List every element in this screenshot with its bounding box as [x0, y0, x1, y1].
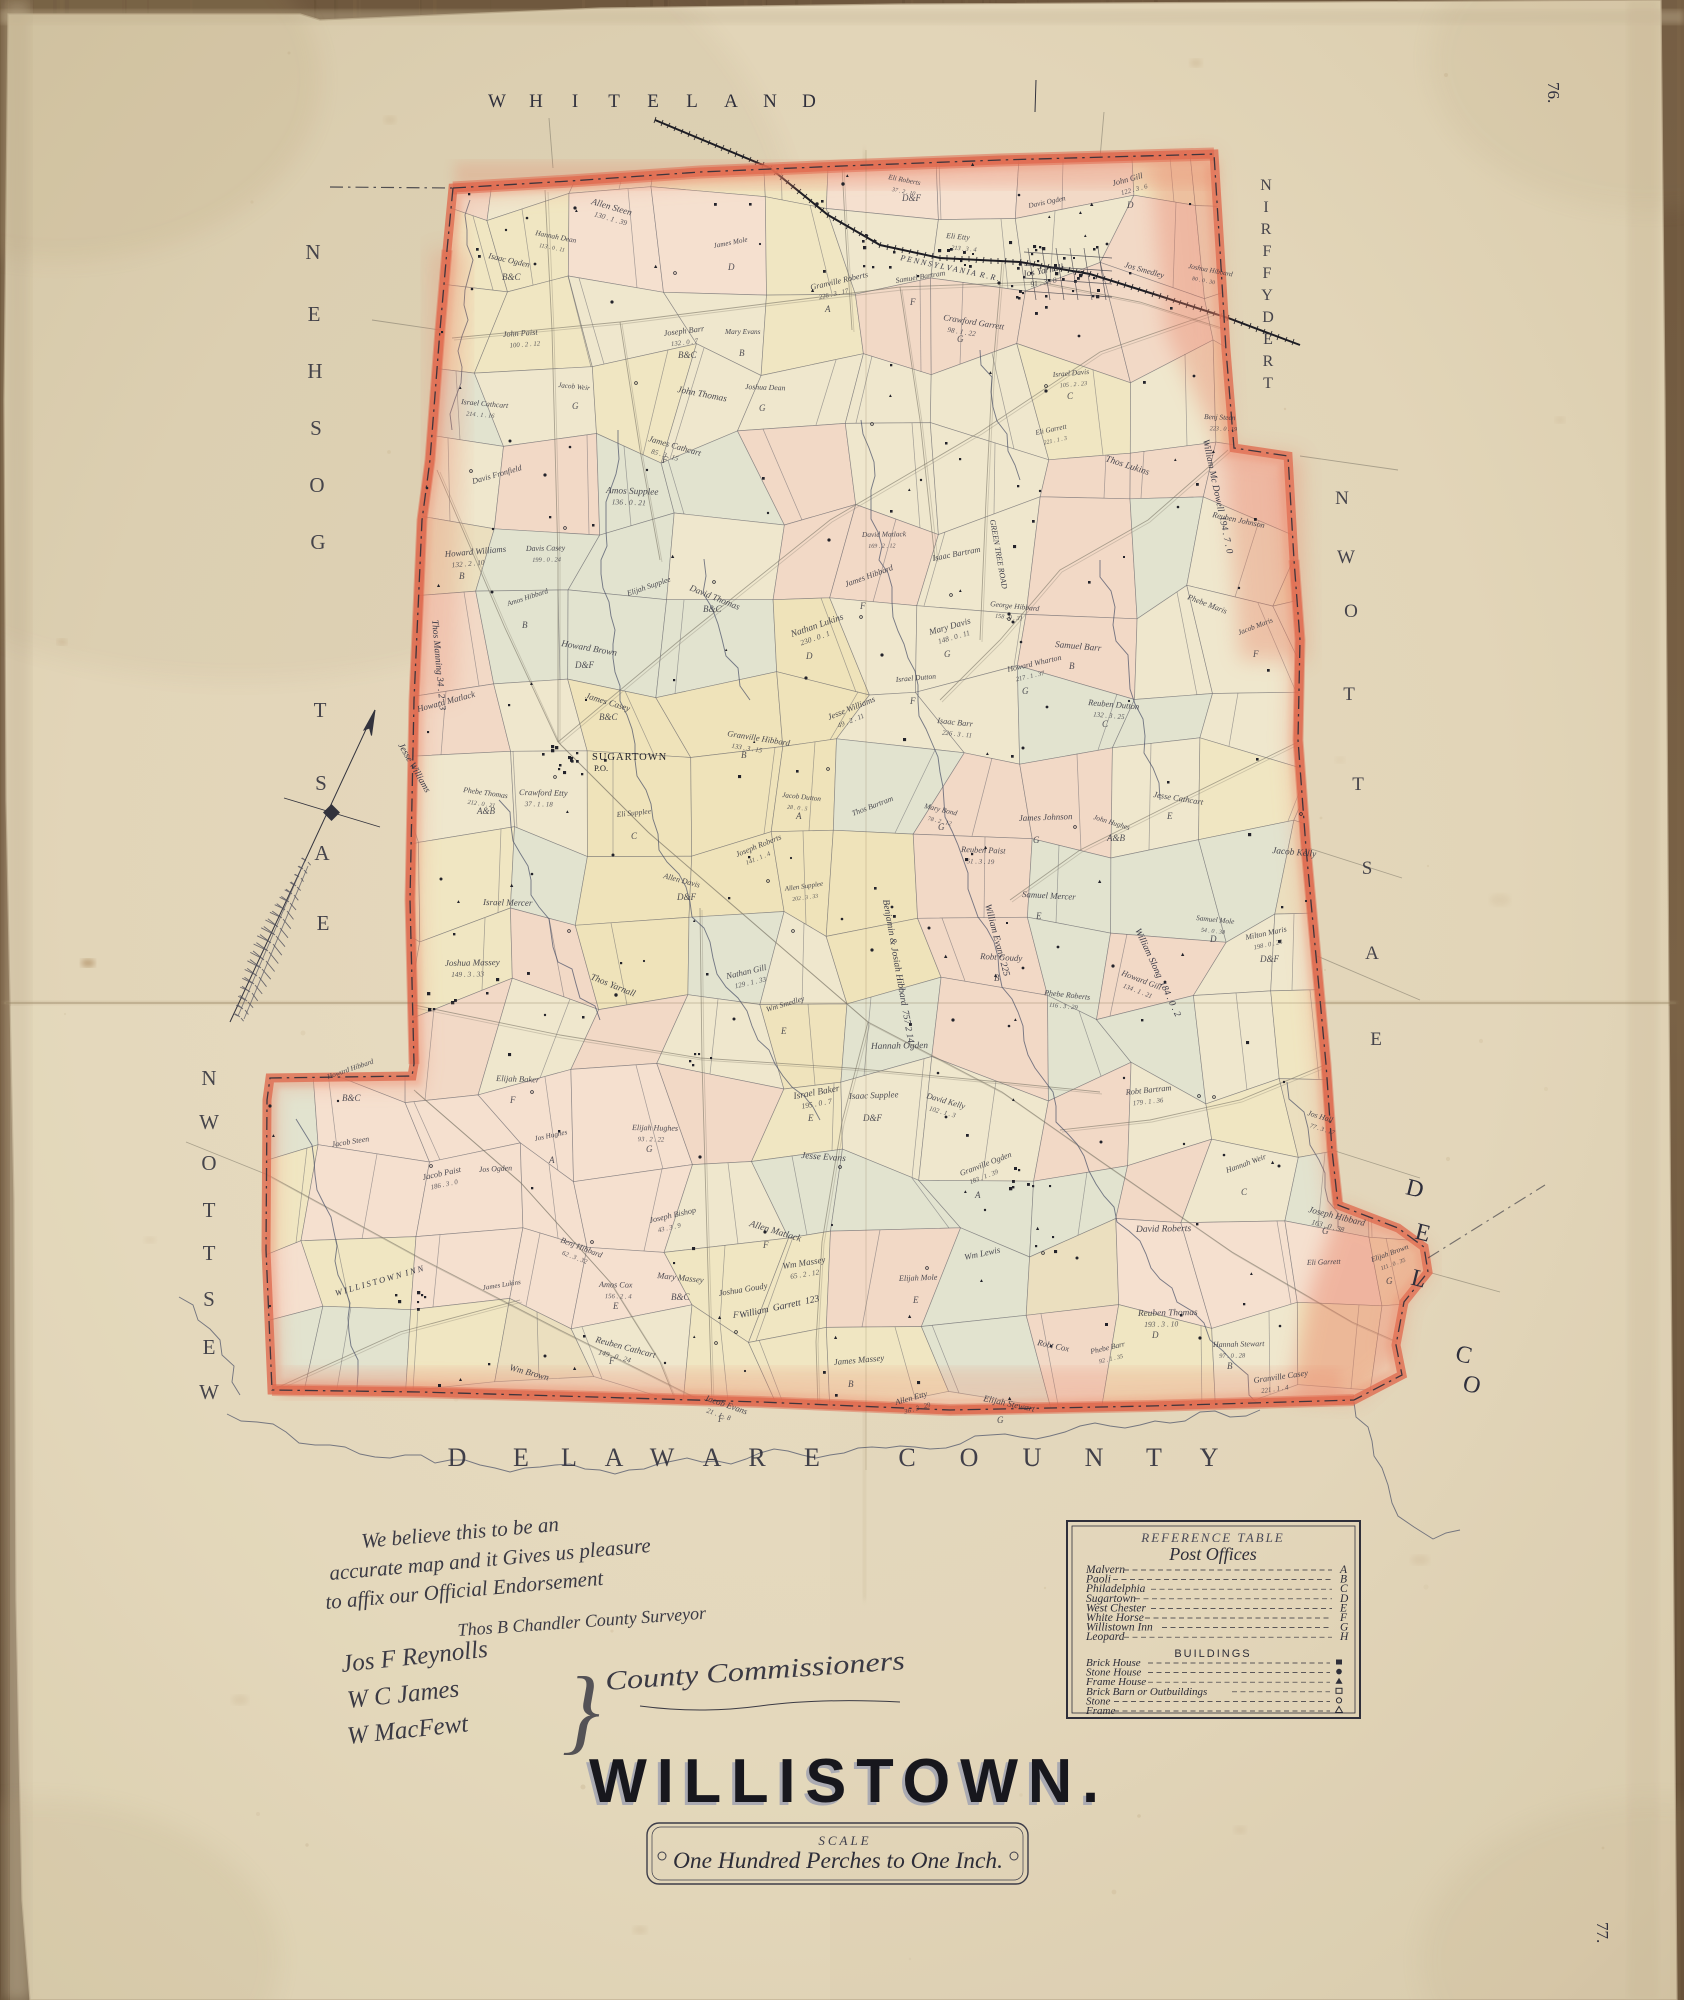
svg-text:W: W: [650, 1443, 675, 1472]
svg-text:H: H: [307, 359, 322, 383]
svg-text:E: E: [1035, 911, 1042, 921]
svg-text:G: G: [1033, 835, 1040, 845]
svg-text:D: D: [1209, 934, 1217, 944]
svg-text:D: D: [1151, 1330, 1159, 1340]
svg-text:C: C: [898, 1443, 915, 1472]
svg-text:E: E: [807, 1113, 814, 1123]
svg-text:WILLISTOWN.: WILLISTOWN.: [589, 1747, 1109, 1816]
svg-text:U: U: [1023, 1443, 1042, 1472]
svg-text:T: T: [1352, 774, 1364, 795]
svg-text:O: O: [309, 473, 324, 497]
svg-text:76.: 76.: [1544, 82, 1563, 103]
svg-text:H: H: [529, 91, 543, 112]
svg-text:Benj Steen: Benj Steen: [1204, 412, 1236, 422]
svg-text:W: W: [199, 1110, 219, 1134]
svg-text:E: E: [513, 1443, 529, 1472]
svg-text:W: W: [488, 91, 506, 112]
svg-text:136 . 0 . 21: 136 . 0 . 21: [612, 497, 646, 507]
svg-text:S: S: [1362, 858, 1373, 879]
svg-text:Reuben Paist: Reuben Paist: [960, 845, 1006, 856]
svg-text:D&F: D&F: [574, 660, 595, 670]
svg-text:BUILDINGS: BUILDINGS: [1174, 1648, 1251, 1660]
svg-text:P.O.: P.O.: [594, 763, 608, 773]
svg-text:I: I: [572, 91, 578, 112]
svg-text:D: D: [727, 262, 735, 272]
svg-text:D&F: D&F: [676, 892, 697, 902]
svg-text:W: W: [199, 1380, 219, 1404]
svg-text:N: N: [1335, 488, 1349, 509]
svg-text:F: F: [909, 297, 916, 307]
svg-text:B&C: B&C: [342, 1093, 361, 1103]
svg-text:A&B: A&B: [1106, 833, 1125, 843]
svg-text:T: T: [608, 91, 620, 112]
svg-text:E: E: [317, 911, 330, 935]
svg-text:Elijah Mole: Elijah Mole: [898, 1273, 938, 1283]
svg-text:N: N: [305, 240, 320, 264]
svg-text:Amos Supplee: Amos Supplee: [605, 486, 659, 498]
svg-text:David Roberts: David Roberts: [1135, 1224, 1192, 1235]
svg-text:Y: Y: [1200, 1443, 1219, 1472]
svg-text:Elijah Hughes: Elijah Hughes: [631, 1123, 678, 1133]
svg-text:G: G: [938, 822, 945, 832]
svg-text:N: N: [1260, 177, 1272, 194]
svg-text:D&F: D&F: [1259, 954, 1280, 964]
svg-text:G: G: [957, 334, 964, 344]
svg-text:G: G: [572, 401, 579, 411]
svg-text:93 . 2 . 22: 93 . 2 . 22: [638, 1136, 665, 1143]
svg-text:REFERENCE TABLE: REFERENCE TABLE: [1140, 1530, 1285, 1545]
svg-text:A: A: [795, 811, 802, 821]
svg-text:A: A: [974, 1190, 981, 1200]
svg-text:E: E: [612, 1301, 619, 1311]
svg-text:E: E: [780, 1026, 787, 1036]
svg-text:James Johnson: James Johnson: [1019, 811, 1073, 823]
svg-text:G: G: [310, 530, 325, 554]
svg-text:T: T: [1146, 1443, 1162, 1472]
svg-text:Eli Garrett: Eli Garrett: [1306, 1257, 1342, 1267]
svg-text:A: A: [1365, 943, 1379, 964]
svg-text:Elijah Baker: Elijah Baker: [495, 1073, 540, 1085]
svg-text:E: E: [912, 1295, 919, 1305]
svg-text:G: G: [997, 1415, 1004, 1425]
svg-text:C: C: [1102, 719, 1109, 729]
svg-text:A: A: [724, 91, 738, 112]
svg-text:C: C: [1241, 1187, 1248, 1197]
svg-text:Amos Cox: Amos Cox: [598, 1280, 633, 1290]
svg-text:T: T: [203, 1241, 216, 1265]
svg-text:T: T: [1263, 375, 1273, 392]
svg-text:SCALE: SCALE: [818, 1833, 871, 1848]
svg-text:Hannah Ogden: Hannah Ogden: [870, 1041, 929, 1052]
svg-text:A: A: [824, 304, 831, 314]
svg-text:F: F: [1252, 649, 1259, 659]
svg-text:O: O: [1344, 601, 1358, 622]
svg-text:Joshua Dean: Joshua Dean: [745, 382, 786, 392]
svg-text:E: E: [203, 1335, 216, 1359]
svg-text:B&C: B&C: [502, 272, 521, 282]
svg-text:G: G: [759, 403, 766, 413]
svg-text:O: O: [201, 1151, 216, 1175]
svg-text:T: T: [1343, 684, 1355, 705]
svg-text:Mary Evans: Mary Evans: [724, 327, 761, 336]
svg-text:I: I: [1263, 199, 1268, 216]
svg-text:E: E: [804, 1443, 820, 1472]
svg-text:51 . 3 . 19: 51 . 3 . 19: [967, 858, 995, 866]
svg-text:37 . 1 . 18: 37 . 1 . 18: [524, 800, 554, 809]
svg-text:S: S: [315, 771, 327, 795]
svg-text:G: G: [1386, 1276, 1393, 1286]
svg-text:223 . 0 . 19: 223 . 0 . 19: [1210, 426, 1238, 433]
svg-text:97 . 0 . 28: 97 . 0 . 28: [1219, 1352, 1246, 1359]
svg-text:F: F: [661, 455, 668, 465]
svg-text:B&C: B&C: [703, 604, 722, 614]
svg-text:E: E: [1263, 331, 1273, 348]
svg-text:156 . 2 . 4: 156 . 2 . 4: [605, 1293, 633, 1300]
svg-text:C: C: [631, 831, 638, 841]
svg-text:169 . 2 . 12: 169 . 2 . 12: [868, 543, 896, 549]
svg-text:N: N: [763, 91, 777, 112]
svg-text:W: W: [1337, 547, 1355, 568]
svg-text:T: T: [203, 1198, 216, 1222]
svg-text:L: L: [686, 91, 698, 112]
svg-text:David Matlack: David Matlack: [861, 529, 907, 539]
svg-text:A: A: [314, 841, 330, 865]
svg-text:E: E: [1166, 811, 1173, 821]
svg-text:B&C: B&C: [671, 1292, 690, 1302]
svg-text:SUGARTOWN: SUGARTOWN: [592, 752, 667, 763]
svg-text:Hannah Stewart: Hannah Stewart: [1212, 1339, 1265, 1349]
svg-text:D: D: [1126, 200, 1134, 210]
svg-text:N: N: [201, 1066, 216, 1090]
svg-text:Leopard: Leopard: [1085, 1631, 1125, 1643]
svg-text:G: G: [1022, 686, 1029, 696]
svg-text:D&F: D&F: [901, 193, 922, 203]
svg-text:Crawford Etty: Crawford Etty: [519, 787, 568, 798]
svg-text:D: D: [1262, 309, 1274, 326]
svg-text:B: B: [522, 620, 528, 630]
svg-text:S: S: [310, 416, 322, 440]
svg-text:R: R: [748, 1443, 766, 1472]
svg-text:F: F: [1263, 265, 1272, 282]
svg-text:E: E: [647, 91, 659, 112]
svg-text:149 . 3 . 33: 149 . 3 . 33: [451, 969, 484, 979]
svg-text:B&C: B&C: [678, 350, 697, 360]
svg-text:A: A: [703, 1443, 722, 1472]
svg-text:D: D: [805, 651, 813, 661]
svg-text:199 . 0 . 24: 199 . 0 . 24: [532, 556, 562, 564]
svg-text:A&B: A&B: [476, 806, 495, 816]
svg-text:A: A: [605, 1443, 624, 1472]
svg-text:B: B: [848, 1379, 854, 1389]
svg-text:G: G: [646, 1144, 653, 1154]
svg-text:R: R: [1263, 353, 1274, 370]
svg-text:H: H: [1339, 1631, 1349, 1643]
svg-text:S: S: [203, 1287, 215, 1311]
svg-text:Isaac Supplee: Isaac Supplee: [848, 1089, 899, 1101]
svg-text:N: N: [1085, 1443, 1104, 1472]
svg-text:C: C: [1067, 391, 1074, 401]
svg-text:Reuben Thomas: Reuben Thomas: [1137, 1308, 1198, 1319]
svg-text:F: F: [509, 1095, 516, 1105]
svg-text:F: F: [909, 696, 916, 706]
svg-text:Y: Y: [1261, 287, 1273, 304]
svg-text:Frame: Frame: [1085, 1705, 1115, 1717]
svg-text:R: R: [1261, 221, 1272, 238]
svg-text:F: F: [717, 1414, 724, 1424]
svg-text:G: G: [944, 649, 951, 659]
svg-text:L: L: [561, 1443, 577, 1472]
svg-text:B: B: [739, 348, 745, 358]
svg-text:F: F: [762, 1240, 769, 1250]
svg-text:G: G: [1322, 1226, 1329, 1236]
svg-text:One Hundred Perches to One Inc: One Hundred Perches to One Inch.: [673, 1848, 1003, 1873]
svg-text:F: F: [1263, 243, 1272, 260]
svg-text:D: D: [802, 91, 816, 112]
svg-text:D: D: [448, 1443, 467, 1472]
svg-text:Jos Ogden: Jos Ogden: [479, 1163, 513, 1174]
svg-text:T: T: [314, 698, 327, 722]
svg-text:F: F: [859, 601, 866, 611]
svg-text:A: A: [548, 1155, 555, 1165]
svg-text:B: B: [994, 973, 1000, 983]
svg-text:77.: 77.: [1593, 1922, 1612, 1943]
svg-text:B: B: [1227, 1361, 1233, 1371]
svg-text:B: B: [741, 750, 747, 760]
svg-text:D&F: D&F: [862, 1113, 883, 1123]
svg-text:Joshua Massey: Joshua Massey: [445, 957, 500, 968]
svg-text:B: B: [1069, 661, 1075, 671]
svg-text:Davis Casey: Davis Casey: [525, 543, 566, 553]
svg-text:Post Offices: Post Offices: [1168, 1544, 1257, 1564]
svg-text:E: E: [308, 302, 321, 326]
svg-text:193 . 3 . 10: 193 . 3 . 10: [1144, 1319, 1179, 1329]
svg-text:B: B: [459, 571, 465, 581]
svg-text:F: F: [608, 1356, 615, 1366]
svg-text:O: O: [960, 1443, 979, 1472]
svg-text:B&C: B&C: [599, 712, 618, 722]
svg-text:Israel Mercer: Israel Mercer: [482, 897, 533, 908]
svg-text:E: E: [1370, 1029, 1382, 1050]
